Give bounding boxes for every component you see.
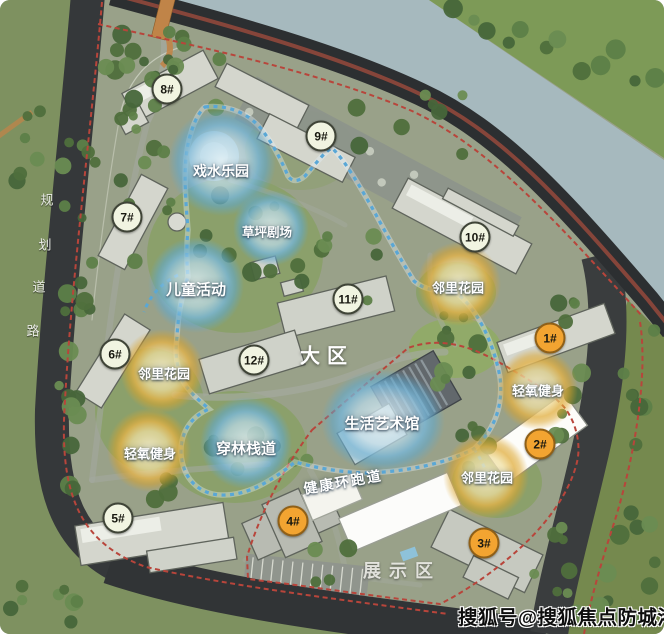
site-plan-map: 规 划 道 路 戏水乐园 草坪剧场 儿童活动 穿林栈道 生活艺术馆 邻里花园 邻… [0, 0, 664, 634]
map-artwork [0, 0, 664, 634]
